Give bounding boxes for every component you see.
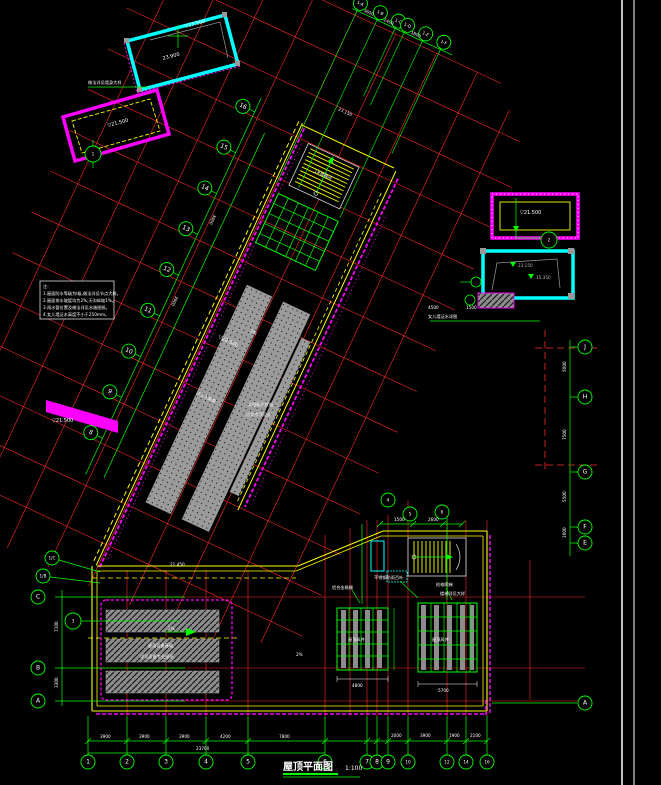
axis-label: 12 [444, 760, 450, 765]
detail-mark-label: 3 [72, 619, 75, 624]
slope-label: 2% [296, 652, 303, 657]
dim-text: 2600 [428, 517, 439, 522]
detail-mark-label: 6 [441, 510, 444, 515]
note-label: 不锈钢防雨百叶 [374, 574, 404, 581]
cad-canvas[interactable]: 16 15 14 13 12 11 10 9 8 3900 3900 1-A 1… [0, 0, 661, 785]
axis-label: C [36, 594, 40, 601]
dim-text: 4800 [352, 683, 363, 688]
drawing-scale: 1:100 [345, 765, 362, 772]
dim-text: 7800 [279, 734, 290, 739]
axis-label: 7 [365, 759, 369, 766]
dim-text: 5000 [562, 361, 567, 372]
note-label: 详见专项设计 [246, 411, 271, 418]
dim-text: 2000 [391, 733, 402, 738]
dim-text: 3900 [179, 734, 190, 739]
note-label: 女儿墙泛水详图 [428, 313, 457, 320]
dim-text: 1900 [449, 733, 460, 738]
note-label: 屋顶风井 [348, 636, 365, 643]
elevation-label: ▽21.500 [52, 418, 73, 424]
drawing-title-text: 屋顶平面图 [283, 761, 333, 773]
note-label: 楼梯详见大样 [440, 590, 465, 597]
axis-label: 14 [463, 760, 469, 765]
dim-text: 3900 [100, 734, 111, 739]
dim-text: 5500 [562, 491, 567, 502]
elevation-label: ▽21.500 [520, 210, 541, 216]
detail-mark-label: 2 [548, 238, 551, 243]
dim-text: 7500 [562, 429, 567, 440]
dim-text: 1500 [394, 517, 405, 522]
notes-box: 注: 1.屋面防水等级为Ⅰ级,做法详见节点大样。 2.屋面排水坡度均为2%,天沟… [40, 281, 121, 319]
detail-mark-label: 1 [92, 152, 95, 157]
notes-line: 注: [43, 283, 49, 290]
axis-label: 2 [125, 759, 129, 766]
dim-text: 3300 [54, 677, 59, 688]
axis-label: 9 [386, 759, 390, 766]
axis-label: F [583, 524, 587, 531]
detail-mark-label: 5 [409, 512, 412, 517]
dim-text: 7100 [54, 621, 59, 632]
note-label: 检修爬梯 [436, 581, 453, 588]
axis-label: 8 [375, 759, 379, 766]
dim-text: 1500 [466, 305, 477, 310]
axis-label: 5 [246, 759, 250, 766]
note-label: 屋面设备基础 [148, 642, 173, 649]
axis-label: G [583, 469, 588, 476]
axis-label: J [583, 344, 586, 351]
axis-label: 4 [204, 759, 208, 766]
notes-line: 1.屋面防水等级为Ⅰ级,做法详见节点大样。 [43, 290, 121, 297]
axis-label: 10 [405, 760, 411, 765]
dim-text: 1600 [562, 527, 567, 538]
note-label: 屋顶风井 [432, 636, 449, 643]
dim-text: 2100 [470, 733, 481, 738]
dim-text: 23700 [196, 746, 210, 751]
dim-text: 4200 [220, 734, 231, 739]
dim-text: 3900 [139, 734, 150, 739]
stair-bottom [408, 538, 466, 576]
axis-label: 16 [484, 760, 490, 765]
note-label: 做法详见墙身大样 [88, 79, 122, 86]
axis-label: B [36, 665, 40, 672]
axis-label: H [583, 394, 588, 401]
elevation-label: 23.150 [518, 263, 533, 268]
dim-text: 3900 [420, 733, 431, 738]
detail-mark-label: 4 [387, 498, 390, 503]
axis-label: E [583, 540, 587, 547]
elevation-label: 21.450 [170, 562, 185, 567]
axis-label: 3 [164, 759, 168, 766]
notes-line: 3.雨水管位置及做法详见水施图纸。 [43, 304, 110, 311]
dim-text: 4500 [428, 305, 439, 310]
notes-line: 4.女儿墙泛水高度不小于250mm。 [43, 311, 109, 318]
axis-label: 1/C [49, 556, 56, 561]
dim-text: 5700 [438, 688, 449, 693]
equipment-pad [106, 671, 219, 693]
slope-label: 2% [168, 626, 175, 631]
notes-line: 2.屋面排水坡度均为2%,天沟纵坡1%。 [43, 297, 116, 304]
note-label: 太阳能光伏板 [248, 401, 274, 408]
axis-label: 1/B [40, 574, 47, 579]
note-label: 铝合金格栅 [332, 584, 353, 591]
note-label: 详见设备专业图纸 [140, 653, 174, 660]
elevation-label: 15.350 [536, 275, 551, 280]
axis-label: 1 [86, 759, 90, 766]
